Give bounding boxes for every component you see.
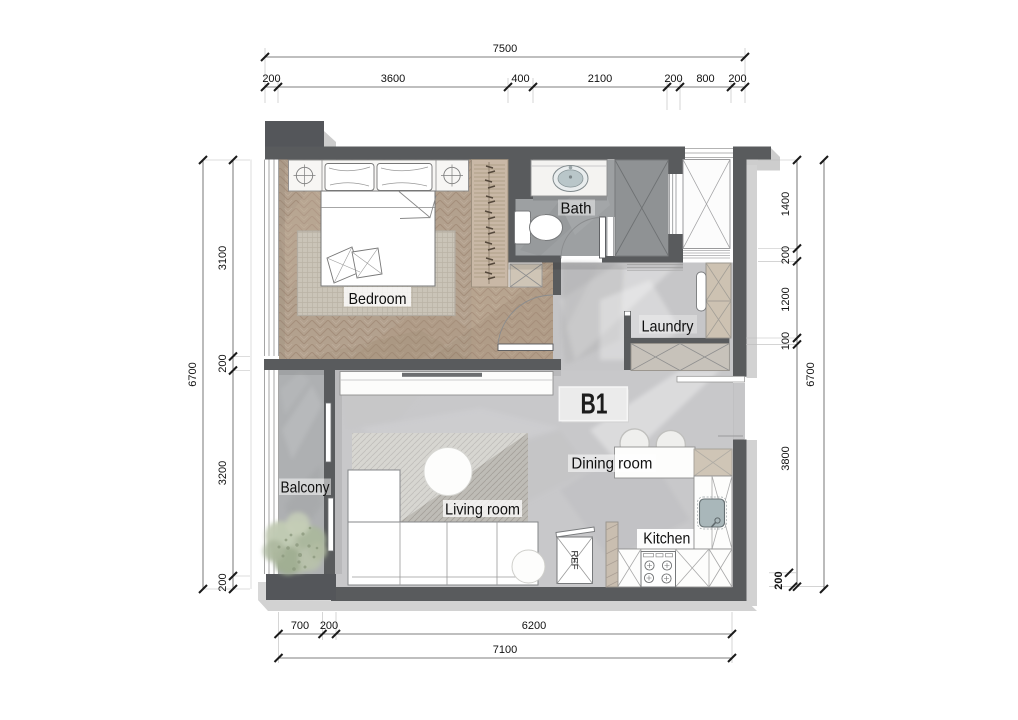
svg-text:Bedroom: Bedroom <box>349 291 407 308</box>
svg-text:200: 200 <box>320 620 338 632</box>
svg-text:3600: 3600 <box>381 73 405 85</box>
svg-text:7100: 7100 <box>493 644 517 656</box>
svg-text:B1: B1 <box>581 388 608 420</box>
svg-text:200: 200 <box>780 246 792 264</box>
svg-text:700: 700 <box>291 620 309 632</box>
svg-text:800: 800 <box>696 73 714 85</box>
svg-text:200: 200 <box>262 73 280 85</box>
svg-text:3100: 3100 <box>217 246 229 270</box>
svg-text:2100: 2100 <box>588 73 612 85</box>
svg-text:200: 200 <box>217 354 229 372</box>
svg-text:1200: 1200 <box>780 287 792 311</box>
svg-text:200: 200 <box>217 573 229 591</box>
svg-text:1400: 1400 <box>780 192 792 216</box>
svg-text:200: 200 <box>728 73 746 85</box>
svg-text:3200: 3200 <box>217 461 229 485</box>
svg-text:Kitchen: Kitchen <box>643 531 690 548</box>
svg-text:6200: 6200 <box>522 620 546 632</box>
svg-text:200: 200 <box>773 571 785 589</box>
svg-text:100: 100 <box>780 332 792 350</box>
svg-text:Dining room: Dining room <box>571 456 652 473</box>
svg-text:6700: 6700 <box>805 362 817 386</box>
svg-text:7500: 7500 <box>493 43 517 55</box>
svg-text:Laundry: Laundry <box>642 319 694 336</box>
svg-text:Living room: Living room <box>445 502 520 519</box>
svg-text:3800: 3800 <box>780 446 792 470</box>
svg-text:200: 200 <box>664 73 682 85</box>
svg-text:REF: REF <box>568 551 579 570</box>
svg-text:6700: 6700 <box>187 362 199 386</box>
svg-text:400: 400 <box>511 73 529 85</box>
svg-text:Bath: Bath <box>561 201 592 218</box>
svg-text:Balcony: Balcony <box>281 480 330 497</box>
